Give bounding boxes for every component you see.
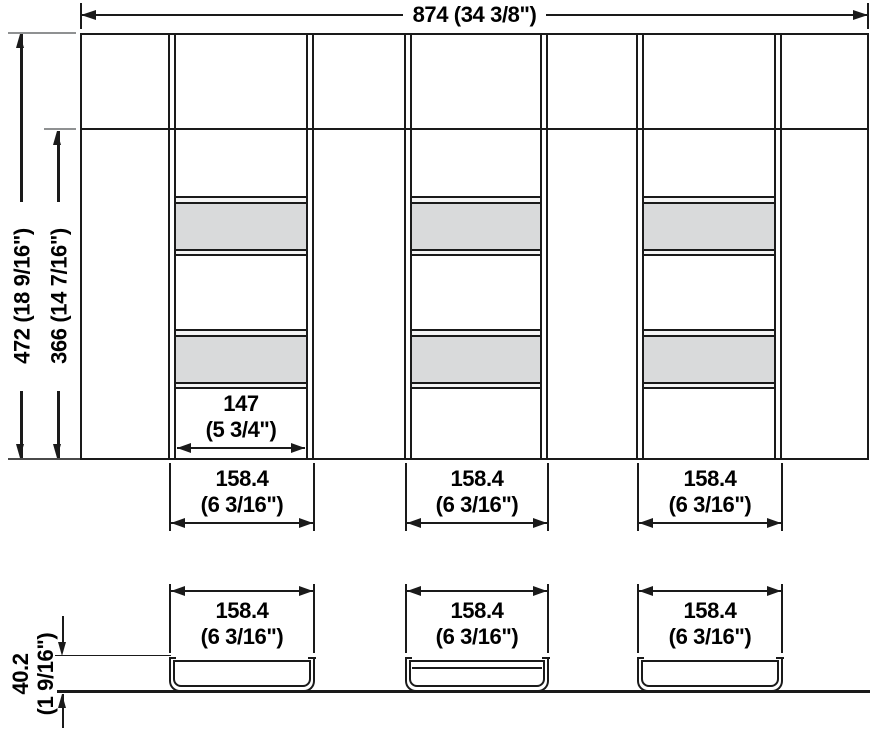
band-rail: [644, 249, 774, 257]
channel-profile-1: [169, 657, 315, 692]
dimension-value-inch: (6 3/16"): [169, 624, 315, 650]
rail-double-line: [636, 34, 644, 459]
dimension-value-inch: (6 3/16"): [405, 624, 549, 650]
dimension-label-overall-width: 874 (34 3/8"): [403, 2, 547, 28]
dimension-value-inch: (6 3/16"): [637, 624, 783, 650]
channel-inner-contour: [641, 660, 779, 687]
band-rail: [644, 196, 774, 204]
dimension-overall-width: 874 (34 3/8"): [81, 2, 868, 28]
band-core: [176, 337, 306, 382]
dimension-channel-width-2: 158.4 (6 3/16"): [405, 584, 549, 653]
dimension-column-width-1: 158.4 (6 3/16"): [169, 463, 315, 531]
dimension-value-mm: 366: [46, 328, 71, 364]
band-rail: [644, 382, 774, 390]
dimension-value-mm: 874: [413, 2, 449, 27]
channel-lip-line: [412, 667, 542, 669]
dimension-value-mm: 158.4: [637, 466, 783, 492]
rail-double-line: [774, 34, 782, 459]
cross-divider-band: [412, 196, 540, 256]
cross-divider-band: [644, 329, 774, 389]
dimension-line: [81, 14, 403, 16]
band-rail: [176, 249, 306, 257]
extension-line-366-top: [44, 128, 76, 130]
dimension-arrow-line: [177, 447, 305, 449]
band-core: [412, 337, 540, 382]
channel-profile-3: [637, 657, 783, 692]
dimension-channel-width-3: 158.4 (6 3/16"): [637, 584, 783, 653]
dimension-value-mm: 158.4: [637, 598, 783, 624]
band-rail: [412, 196, 540, 204]
band-core: [644, 337, 774, 382]
cross-divider-band: [176, 329, 306, 389]
drawer-plan-view: 147 (5 3/4"): [80, 33, 869, 460]
cross-divider-band: [412, 329, 540, 389]
dimension-value-inch: (14 7/16"): [46, 228, 71, 323]
technical-drawing-canvas: 874 (34 3/8") 472 (18 9/16") 366 (14 7/1…: [0, 0, 874, 730]
channel-profile-2: [405, 657, 549, 692]
dimension-value-mm: 147: [176, 391, 306, 417]
arrowhead-up-472: [16, 34, 24, 48]
arrowhead-down-472: [16, 444, 24, 458]
arrowhead-up-height: [58, 694, 66, 708]
band-rail: [176, 329, 306, 337]
band-core: [412, 204, 540, 249]
dimension-arrow-line: [171, 590, 313, 592]
band-rail: [412, 249, 540, 257]
cross-divider-band: [644, 196, 774, 256]
arrowhead-down-height: [58, 642, 66, 656]
channel-inner-contour: [173, 660, 311, 687]
dimension-column-width-2: 158.4 (6 3/16"): [405, 463, 549, 531]
band-rail: [176, 196, 306, 204]
band-rail: [644, 329, 774, 337]
dimension-label-overall-depth: 472 (18 9/16"): [9, 228, 34, 364]
rail-double-line: [168, 34, 176, 459]
dimension-value-mm: 158.4: [405, 466, 549, 492]
band-rail: [176, 382, 306, 390]
extension-line-channel-top: [55, 655, 171, 657]
rail-double-line: [540, 34, 548, 459]
dimension-channel-width-1: 158.4 (6 3/16"): [169, 584, 315, 653]
dimension-value-inch: (1 9/16"): [33, 633, 58, 716]
dimension-arrow-line: [407, 590, 547, 592]
arrowhead-up-366: [53, 131, 61, 145]
dimension-value-mm: 40.2: [8, 633, 33, 716]
dimension-line: [546, 14, 868, 16]
rail-double-line: [404, 34, 412, 459]
dimension-arrow-line: [171, 522, 313, 524]
cross-divider-band: [176, 196, 306, 256]
band-core: [644, 204, 774, 249]
horizontal-divider-line: [80, 128, 869, 130]
dimension-value-inch: (6 3/16"): [405, 492, 549, 518]
band-rail: [412, 329, 540, 337]
arrowhead-down-366: [53, 444, 61, 458]
band-core: [176, 204, 306, 249]
dimension-line-472-upper: [20, 34, 22, 202]
drawer-base-line: [57, 690, 870, 694]
rail-double-line: [306, 34, 314, 459]
dimension-value-inch: (5 3/4"): [176, 417, 306, 443]
dimension-value-inch: (6 3/16"): [169, 492, 315, 518]
dimension-arrow-line: [639, 522, 781, 524]
dimension-value-mm: 158.4: [405, 598, 549, 624]
dimension-value-inch: (18 9/16"): [9, 228, 34, 323]
dimension-label-inner-depth: 366 (14 7/16"): [46, 228, 71, 364]
band-rail: [412, 382, 540, 390]
channel-inner-contour: [409, 660, 545, 687]
dimension-label-profile-height: 40.2 (1 9/16"): [8, 633, 58, 716]
dimension-column-width-3: 158.4 (6 3/16"): [637, 463, 783, 531]
dimension-value-mm: 158.4: [169, 466, 315, 492]
dimension-value-mm: 472: [9, 328, 34, 364]
dimension-line-height-upper: [62, 616, 64, 644]
dimension-value-inch: (6 3/16"): [637, 492, 783, 518]
dimension-arrow-line: [407, 522, 547, 524]
dimension-compartment-inner-width: 147 (5 3/4"): [176, 391, 306, 452]
dimension-arrow-line: [639, 590, 781, 592]
dimension-value-mm: 158.4: [169, 598, 315, 624]
dimension-value-inch: (34 3/8"): [454, 2, 537, 27]
